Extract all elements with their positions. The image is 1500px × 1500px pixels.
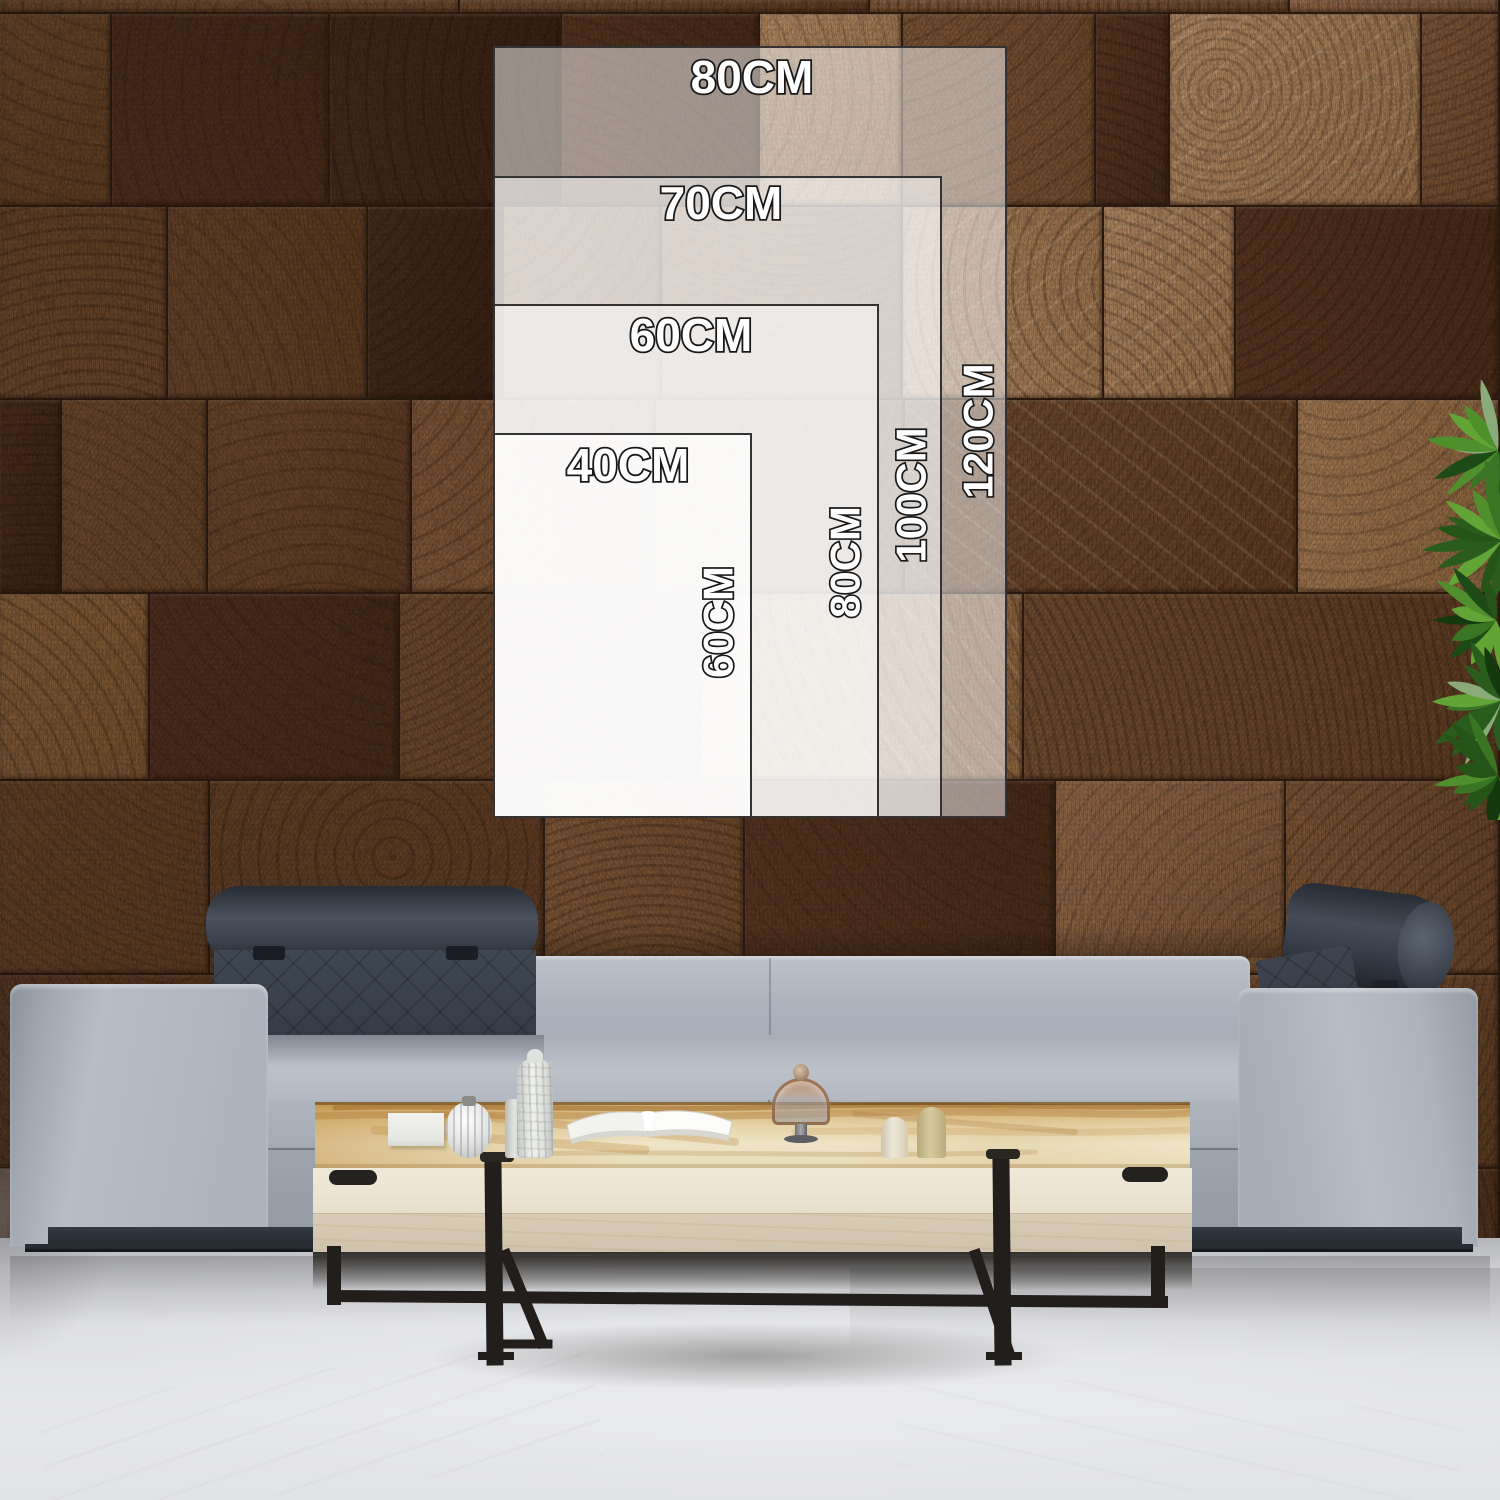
svg-text:60CM: 60CM bbox=[630, 309, 753, 361]
svg-text:40CM: 40CM bbox=[567, 439, 690, 491]
svg-text:100CM: 100CM bbox=[888, 427, 935, 562]
svg-text:60CM: 60CM bbox=[695, 566, 742, 678]
svg-text:80CM: 80CM bbox=[822, 506, 869, 618]
svg-text:120CM: 120CM bbox=[955, 363, 1002, 498]
svg-text:70CM: 70CM bbox=[660, 177, 783, 229]
svg-text:80CM: 80CM bbox=[691, 51, 814, 103]
